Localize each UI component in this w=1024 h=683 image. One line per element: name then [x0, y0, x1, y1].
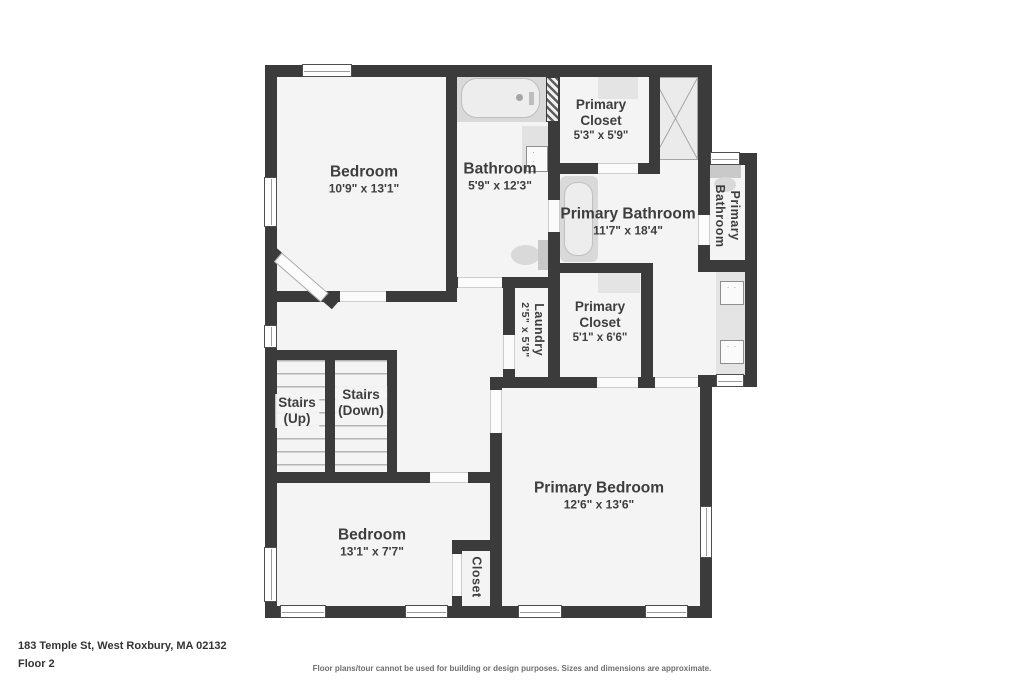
- room-dimensions: 2'5" x 5'8": [518, 302, 531, 357]
- wall: [698, 260, 757, 272]
- window: [716, 374, 744, 387]
- window: [518, 605, 562, 618]
- room-dimensions: 13'1" x 7'7": [338, 545, 406, 560]
- room-label-closet: Closet: [469, 556, 484, 597]
- window: [264, 547, 277, 602]
- window: [264, 325, 277, 348]
- door-opening: [458, 277, 502, 288]
- wall: [325, 350, 335, 483]
- sink: [720, 281, 744, 305]
- wall: [698, 153, 710, 215]
- bathtub-handle-icon: [529, 92, 534, 105]
- room-name: Bathroom: [463, 161, 536, 178]
- chimney-hatch-icon: [546, 77, 559, 122]
- room-name: Primary Closet: [574, 97, 629, 129]
- room-label-bedroom2: Bedroom 13'1" x 7'7": [338, 527, 406, 560]
- door-opening: [698, 215, 710, 245]
- window: [264, 177, 277, 227]
- room-dimensions: 5'1" x 6'6": [573, 332, 628, 345]
- wall: [641, 263, 653, 387]
- toilet-tank: [538, 240, 548, 270]
- room-name: Bedroom: [338, 527, 406, 544]
- wall: [638, 377, 655, 388]
- wall: [452, 540, 462, 554]
- wall: [649, 65, 660, 174]
- closet-shelf: [598, 273, 640, 293]
- closet-shelf: [598, 77, 638, 99]
- wall: [387, 350, 397, 483]
- room-name: Bedroom: [329, 164, 399, 181]
- room-dimensions: 5'3" x 5'9": [574, 130, 629, 143]
- room-name: Laundry: [531, 302, 546, 357]
- door-opening: [490, 390, 502, 433]
- property-address: 183 Temple St, West Roxbury, MA 02132: [18, 640, 227, 652]
- room-label-stairs-down: Stairs (Down): [335, 386, 387, 420]
- room-dimensions: 11'7" x 18'4": [560, 224, 695, 239]
- room-label-stairs-up: Stairs (Up): [275, 394, 319, 428]
- toilet-bowl: [511, 245, 540, 265]
- wall: [700, 377, 712, 618]
- room-name: Closet: [469, 556, 484, 597]
- room-label-primary-bathroom: Primary Bathroom 11'7" x 18'4": [560, 206, 695, 239]
- room-name: Primary Bedroom: [534, 480, 664, 497]
- wall: [452, 596, 462, 610]
- room-label-bedroom1: Bedroom 10'9" x 13'1": [329, 164, 399, 197]
- room-label-primary-bedroom: Primary Bedroom 12'6" x 13'6": [534, 480, 664, 513]
- room-name: Stairs (Up): [278, 395, 316, 427]
- room-name: Stairs (Down): [338, 387, 384, 419]
- room-dimensions: 12'6" x 13'6": [534, 498, 664, 513]
- door-opening: [598, 163, 638, 174]
- wall: [490, 377, 597, 388]
- window: [710, 152, 740, 165]
- door-opening: [503, 335, 515, 369]
- room-dimensions: 10'9" x 13'1": [329, 182, 399, 197]
- sink: [720, 340, 744, 364]
- door-opening: [548, 200, 560, 232]
- floor-plan: Bedroom 10'9" x 13'1" Bathroom 5'9" x 12…: [0, 0, 1024, 683]
- room-label-laundry: Laundry 2'5" x 5'8": [518, 302, 546, 357]
- door-opening: [452, 554, 462, 596]
- room-label-primary-closet-mid: Primary Closet 5'1" x 6'6": [573, 299, 628, 345]
- room-label-primary-closet-top: Primary Closet 5'3" x 5'9": [574, 97, 629, 143]
- wall: [560, 263, 653, 273]
- window: [280, 605, 326, 618]
- window: [302, 64, 352, 77]
- window: [700, 506, 712, 558]
- door-opening: [340, 291, 386, 302]
- room-label-primary-bathroom-small: Primary Bathroom: [712, 184, 742, 247]
- floor-plan-page: Bedroom 10'9" x 13'1" Bathroom 5'9" x 12…: [0, 0, 1024, 683]
- window: [645, 605, 688, 618]
- room-name: Primary Bathroom: [560, 206, 695, 223]
- bathtub-faucet-icon: [516, 94, 523, 101]
- wall: [698, 65, 712, 165]
- wall: [446, 65, 457, 302]
- room-label-bathroom: Bathroom 5'9" x 12'3": [463, 161, 536, 194]
- room-name: Primary Bathroom: [712, 184, 742, 247]
- door-opening: [430, 472, 468, 483]
- room-dimensions: 5'9" x 12'3": [463, 179, 536, 194]
- disclaimer-text: Floor plans/tour cannot be used for buil…: [0, 664, 1024, 673]
- room-name: Primary Closet: [573, 299, 628, 331]
- window: [405, 605, 448, 618]
- door-opening: [597, 377, 638, 388]
- door-opening: [655, 377, 698, 388]
